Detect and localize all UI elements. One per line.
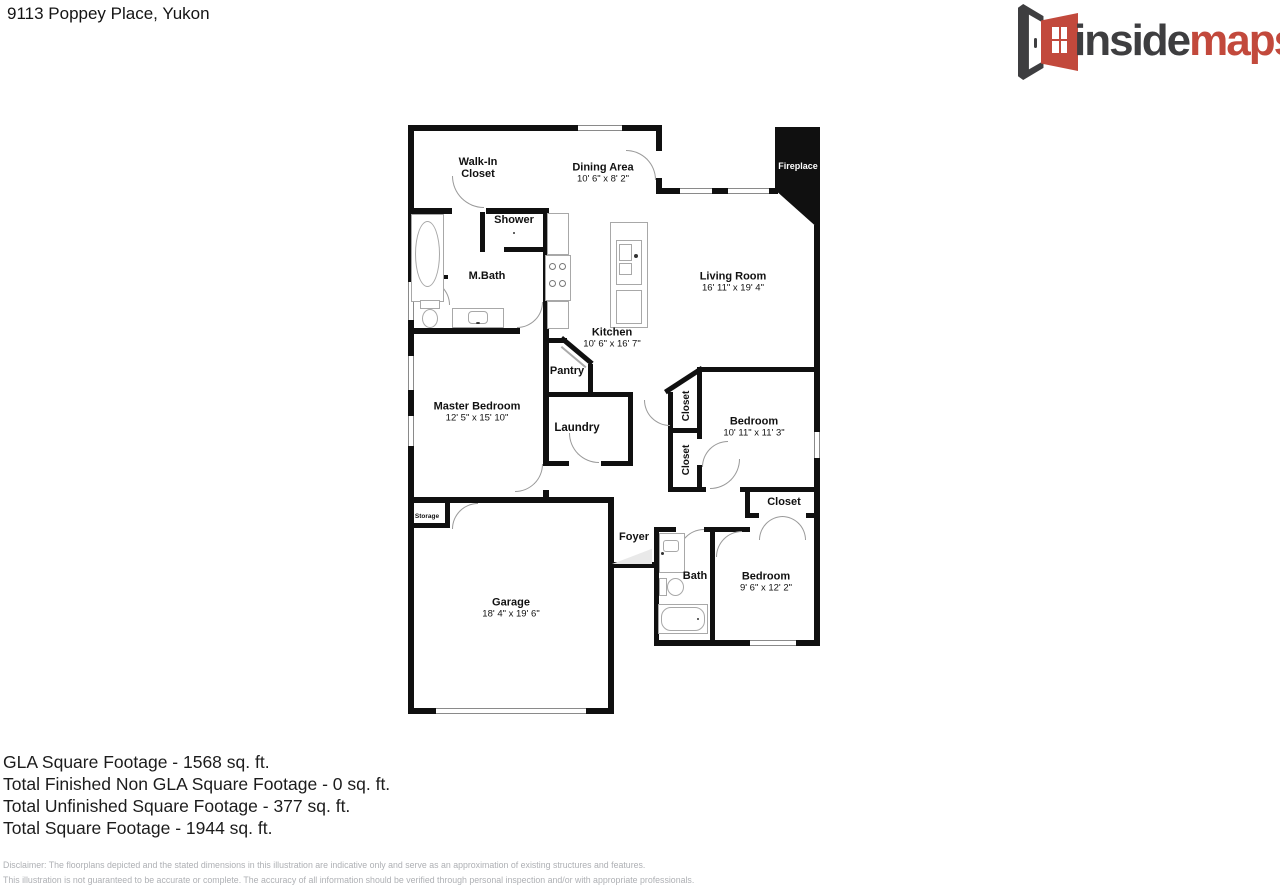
summary-line: Total Finished Non GLA Square Footage - … [3,773,390,795]
room-name: Bedroom [723,416,784,428]
room-dims: 12' 5" x 15' 10" [434,413,521,424]
wall [608,497,614,714]
faucet-icon [476,322,480,324]
open-door-icon [1018,4,1044,80]
burner-icon [549,280,556,287]
room-dims: 10' 6" x 16' 7" [583,339,640,350]
room-label-dining-area: Dining Area 10' 6" x 8' 2" [572,162,633,185]
square-footage-summary: GLA Square Footage - 1568 sq. ft. Total … [3,751,390,839]
wall [668,428,700,433]
room-label-kitchen: Kitchen 10' 6" x 16' 7" [583,327,640,350]
wall [408,708,436,714]
door-arc [569,433,599,463]
floorplan-page: 9113 Poppey Place, Yukon insidemaps Fire… [0,0,1280,892]
wall [628,392,633,466]
window [680,188,712,194]
door-arc [716,531,742,557]
wall [710,527,715,645]
address-title: 9113 Poppey Place, Yukon [7,4,210,24]
logo-text-maps: maps [1189,16,1280,65]
counter-icon [547,213,569,255]
room-name: Bedroom [740,571,792,583]
room-dims: 10' 6" x 8' 2" [572,174,633,185]
room-dims: 16' 11" x 19' 4" [700,283,767,294]
room-dims: 10' 11" x 11' 3" [723,428,784,439]
room-label-m-bath: M.Bath [469,270,506,282]
room-dims: 9' 6" x 12' 2" [740,583,792,594]
door-arc [517,302,543,328]
room-label-bedroom-1: Bedroom 10' 11" x 11' 3" [723,416,784,439]
summary-line: Total Unfinished Square Footage - 377 sq… [3,795,390,817]
wall [408,320,414,356]
wall [543,392,633,397]
counter-icon [547,301,569,329]
wall [601,461,633,466]
door-arc [452,176,484,208]
door-arc [702,441,728,467]
room-name: Living Room [700,271,767,283]
toilet-bowl-icon [422,309,438,328]
window [408,356,414,390]
disclaimer-line: Disclaimer: The floorplans depicted and … [3,858,694,873]
insidemaps-logo: insidemaps [1010,2,1278,84]
wall [656,640,750,646]
door-window-icon [1052,27,1067,53]
room-dims: 18' 4" x 19' 6" [482,609,539,620]
garage-door [436,708,586,714]
wall [408,446,414,714]
window [578,125,622,131]
burner-icon [559,280,566,287]
door-arc [515,464,543,492]
window [750,640,796,646]
wall [588,364,593,394]
stove-icon [545,255,571,301]
room-label-fireplace: Fireplace [778,160,818,172]
doorknob-icon [1034,38,1037,48]
room-label-master-bedroom: Master Bedroom 12' 5" x 15' 10" [434,401,521,424]
room-label-foyer: Foyer [619,531,649,543]
disclaimer: Disclaimer: The floorplans depicted and … [3,858,694,888]
door-arc [452,503,478,529]
room-label-garage: Garage 18' 4" x 19' 6" [482,597,539,620]
wall [586,708,614,714]
logo-text-inside: inside [1074,16,1189,65]
wall [654,527,676,532]
window [408,416,414,446]
wall [408,328,520,334]
wall [543,392,549,462]
room-name: Master Bedroom [434,401,521,413]
wall [408,497,614,503]
room-label-closet-b: Closet [681,445,693,476]
wall [796,640,820,646]
wall [408,390,414,416]
tub-drain-icon [697,618,699,620]
wall [806,513,820,518]
shower-drain-icon [513,232,515,234]
room-label-closet-c: Closet [767,496,801,508]
window [728,188,769,194]
summary-line: Total Square Footage - 1944 sq. ft. [3,817,390,839]
room-label-pantry: Pantry [550,365,584,377]
island-basin-icon [619,263,632,275]
wall [697,367,702,439]
room-label-living-room: Living Room 16' 11" x 19' 4" [700,271,767,294]
wall [656,125,662,151]
room-label-storage: Storage [415,511,439,523]
wall [504,247,546,252]
bathtub-basin-icon [415,221,440,287]
wall [656,188,680,194]
wall [408,125,578,131]
room-label-shower: Shower [494,214,534,226]
room-name: Dining Area [572,162,633,174]
wall [740,487,820,492]
summary-line: GLA Square Footage - 1568 sq. ft. [3,751,390,773]
room-label-walk-in-closet: Walk-In Closet [448,156,508,180]
logo-wordmark: insidemaps [1074,16,1280,66]
island-faucet-icon [634,254,638,258]
wall [480,212,485,252]
room-label-closet-a: Closet [681,391,693,422]
window [814,432,820,458]
wall [712,188,728,194]
island-basin-icon [619,244,632,261]
room-name: Walk-In Closet [448,156,508,180]
wall [408,523,450,528]
disclaimer-line: This illustration is not guaranteed to b… [3,873,694,888]
wall [814,225,820,432]
door-arc [759,516,783,540]
wall [745,513,759,518]
fireplace-shape [775,127,820,230]
room-label-bath: Bath [683,570,707,582]
wall [697,465,702,490]
room-label-bedroom-2: Bedroom 9' 6" x 12' 2" [740,571,792,594]
bath-faucet-icon [661,552,664,555]
wall [697,367,820,372]
door-arc [782,516,806,540]
burner-icon [559,263,566,270]
room-label-laundry: Laundry [554,422,599,434]
burner-icon [549,263,556,270]
toilet-tank-icon [420,300,440,309]
bath-sink-icon [663,540,679,552]
dishwasher-icon [616,290,642,324]
bath-toilet-tank-icon [659,578,667,596]
door-arc [644,400,670,426]
bath-toilet-bowl-icon [667,578,684,596]
room-name: Kitchen [583,327,640,339]
room-name: Garage [482,597,539,609]
